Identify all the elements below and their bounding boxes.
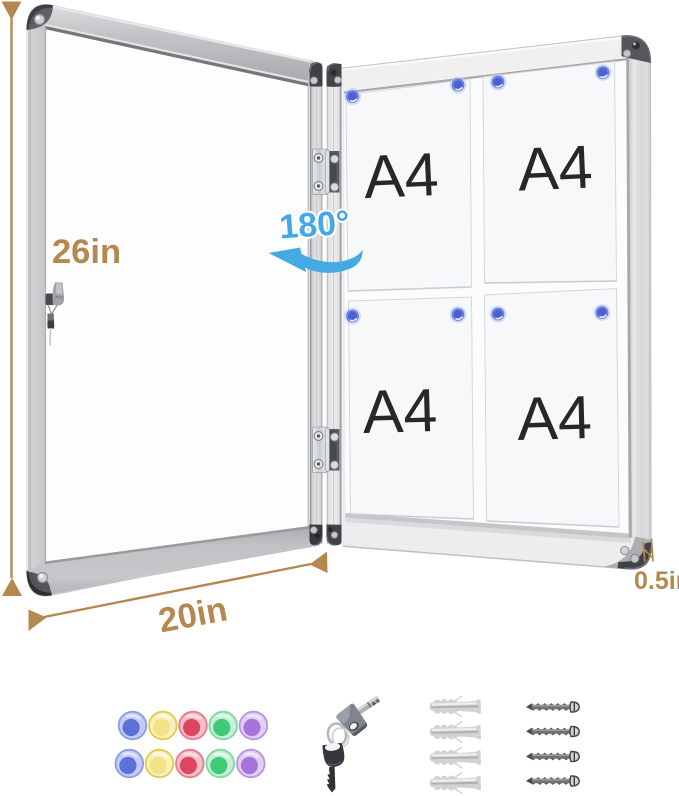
- svg-text:0.5in: 0.5in: [634, 567, 679, 595]
- svg-text:180°: 180°: [278, 204, 351, 247]
- svg-text:A4: A4: [516, 383, 592, 453]
- svg-text:A4: A4: [516, 132, 594, 203]
- svg-text:26in: 26in: [52, 233, 121, 271]
- svg-text:A4: A4: [362, 140, 440, 211]
- svg-text:A4: A4: [362, 376, 438, 446]
